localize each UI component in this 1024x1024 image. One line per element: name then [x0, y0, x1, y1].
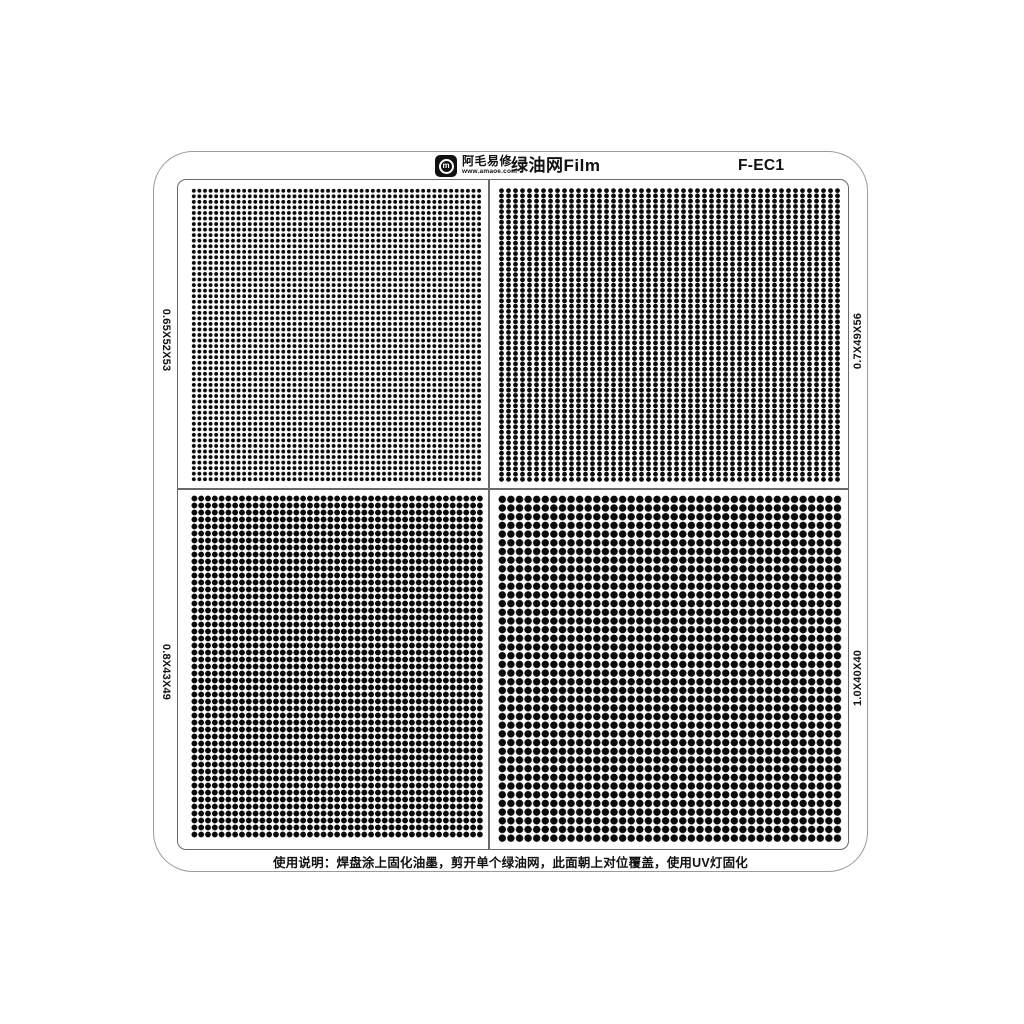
dot-grid-bottom-left [191, 495, 483, 838]
grid-frame [177, 179, 849, 850]
film-sheet: m 阿毛易修 www.amaoe.com 绿油网Film F-EC1 0.65X… [153, 151, 868, 872]
usage-instruction-text: 使用说明：焊盘涂上固化油墨，剪开单个绿油网，此面朝上对位覆盖，使用UV灯固化 [273, 852, 748, 871]
vertical-divider [488, 180, 490, 849]
label-bottom-right-size: 1.0X40X40 [852, 650, 864, 706]
brand-name: 阿毛易修 [462, 154, 517, 168]
brand-block: 阿毛易修 www.amaoe.com [462, 154, 517, 175]
usage-instruction-bar: 使用说明：焊盘涂上固化油墨，剪开单个绿油网，此面朝上对位覆盖，使用UV灯固化 [154, 851, 867, 871]
dot-grid-bottom-right [498, 495, 842, 843]
horizontal-divider [178, 488, 848, 490]
dot-grid-top-left [191, 188, 482, 482]
label-top-right-size: 0.7X49X56 [852, 313, 864, 369]
brand-url: www.amaoe.com [462, 168, 517, 175]
product-image: m 阿毛易修 www.amaoe.com 绿油网Film F-EC1 0.65X… [0, 0, 1024, 1024]
dot-grid-top-right [498, 188, 841, 482]
label-bottom-left-size: 0.8X43X49 [160, 644, 172, 700]
product-title: 绿油网Film [511, 154, 600, 177]
brand-logo-icon: m [435, 155, 457, 177]
logo-m-glyph: m [439, 159, 454, 174]
label-top-left-size: 0.65X52X53 [160, 309, 172, 372]
model-code: F-EC1 [738, 155, 784, 177]
sheet-header: m 阿毛易修 www.amaoe.com 绿油网Film F-EC1 [154, 152, 867, 179]
